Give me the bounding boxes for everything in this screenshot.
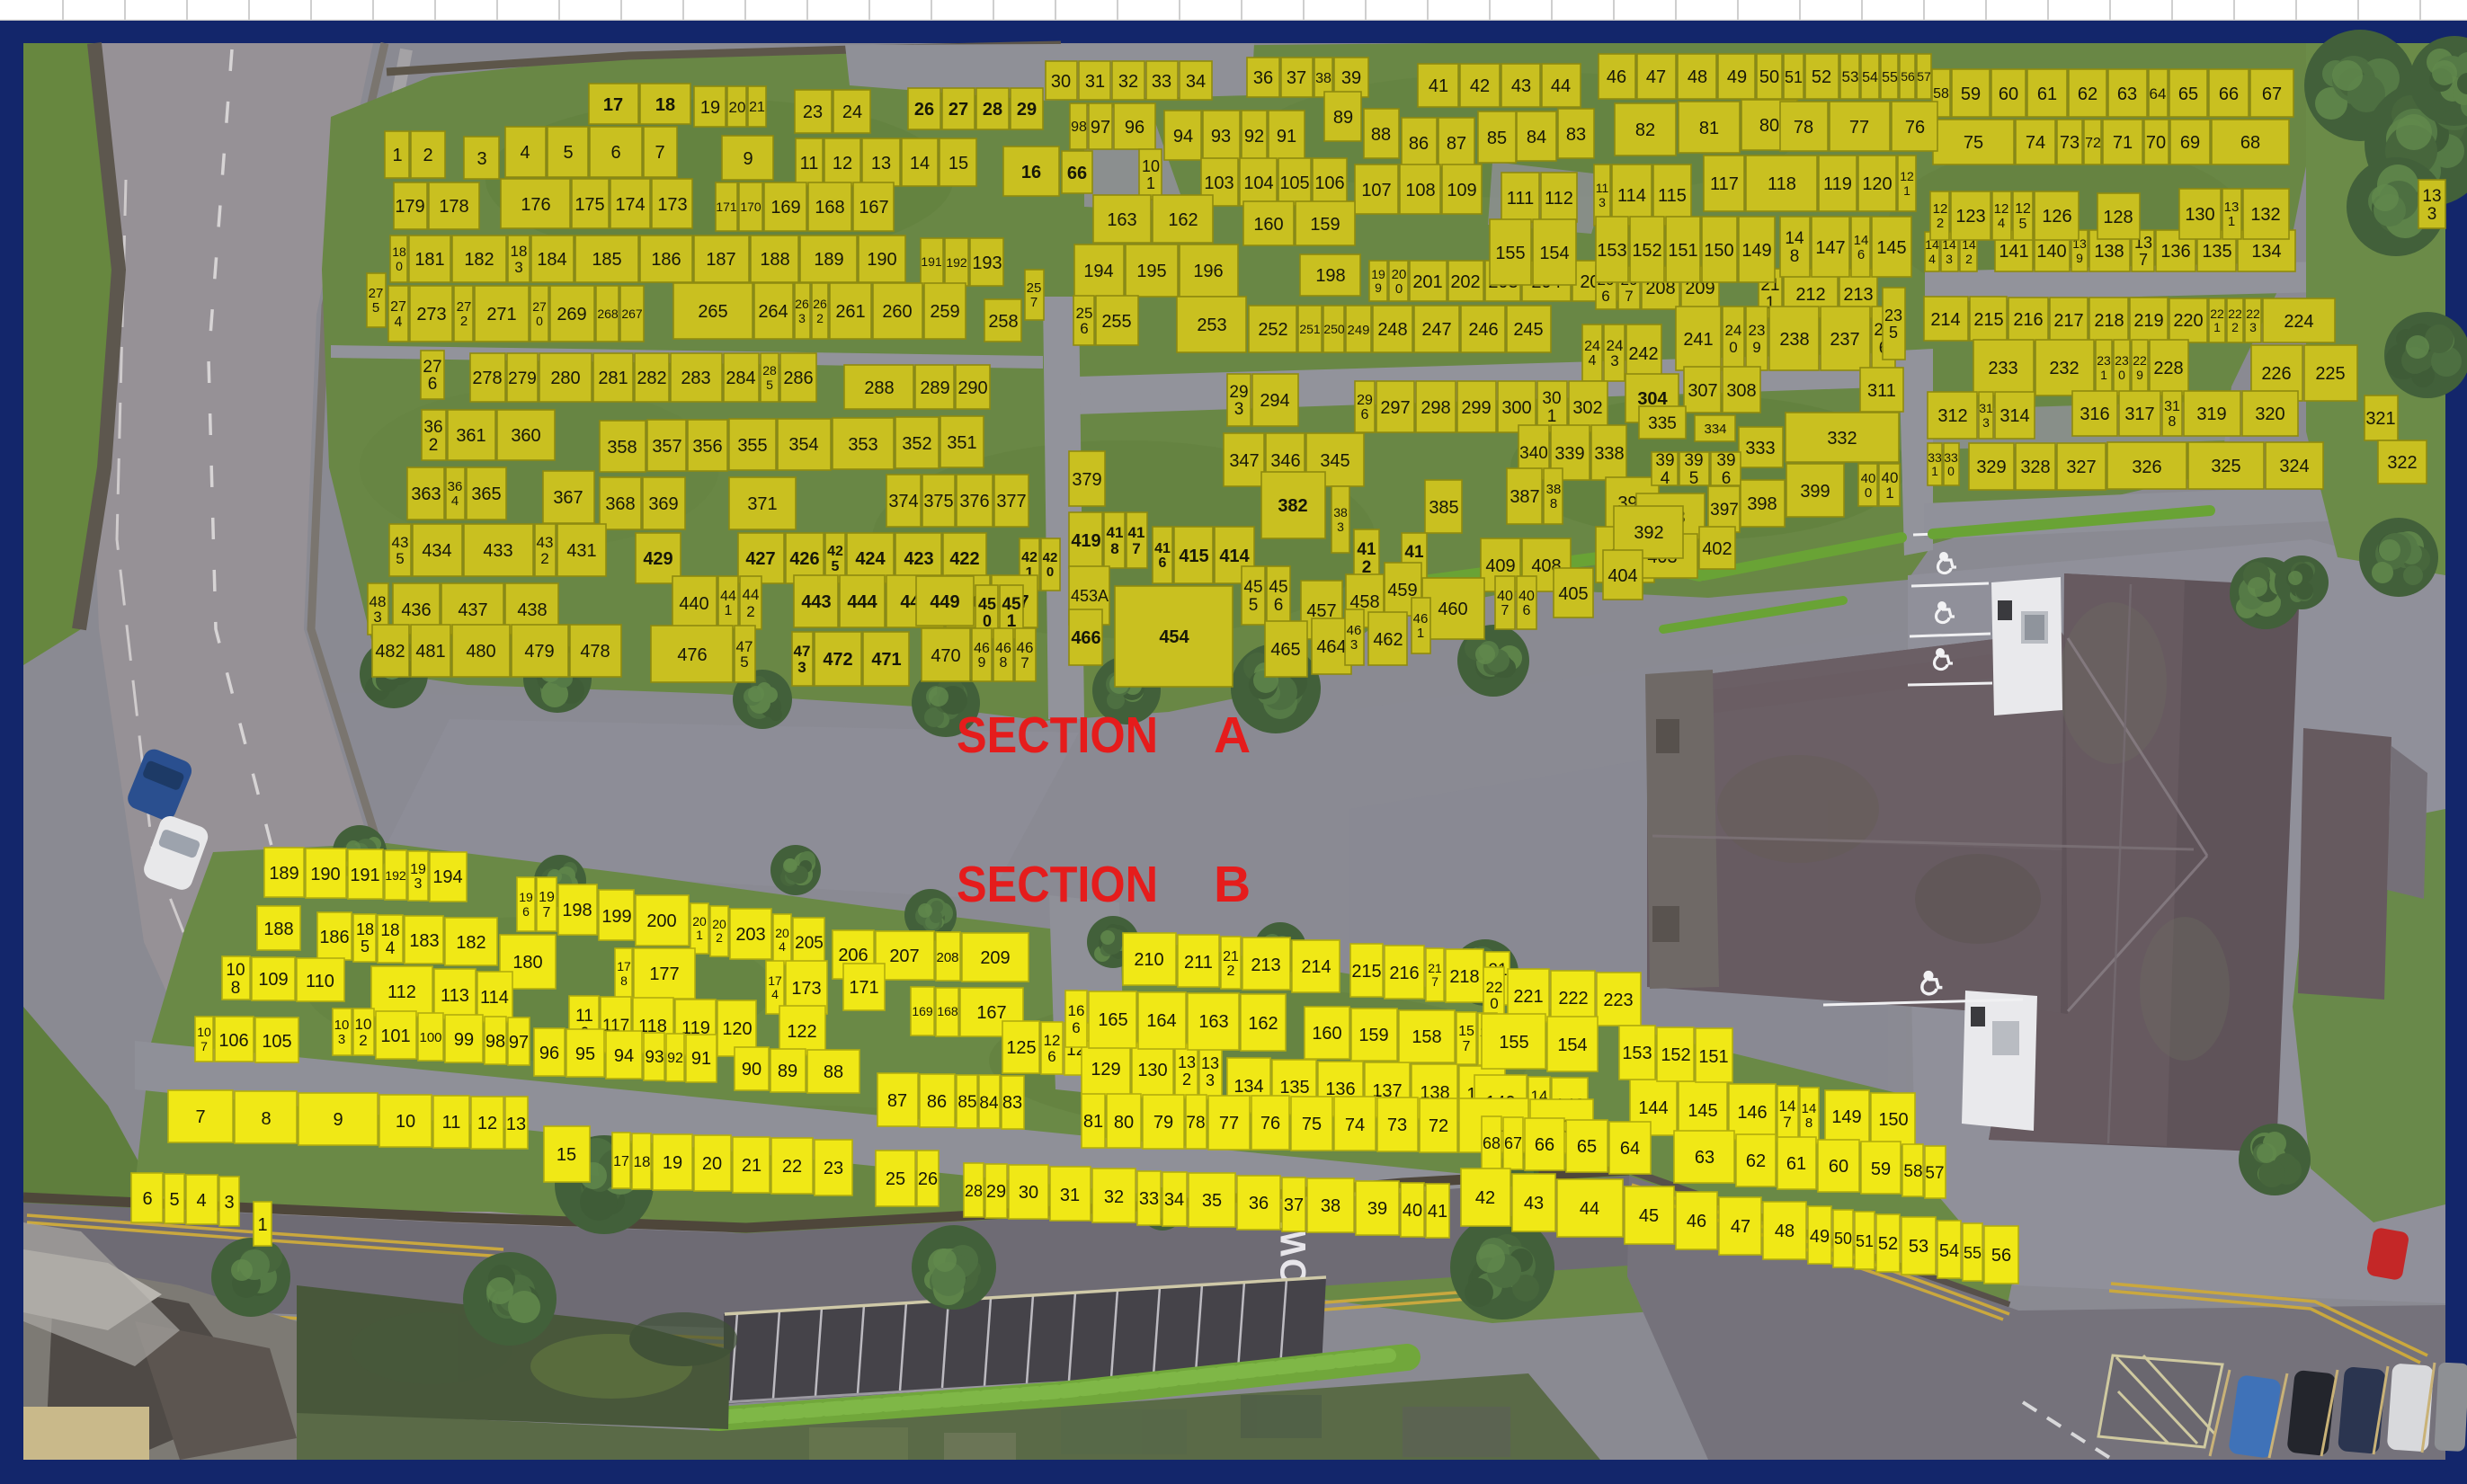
svg-text:103: 103 (1204, 173, 1233, 193)
svg-text:351: 351 (947, 433, 976, 453)
svg-text:41: 41 (1404, 543, 1424, 562)
svg-text:286: 286 (783, 369, 813, 388)
svg-text:168: 168 (815, 198, 844, 218)
svg-text:91: 91 (691, 1049, 711, 1069)
svg-text:67: 67 (2262, 84, 2282, 104)
svg-text:163: 163 (1198, 1012, 1228, 1032)
svg-text:19: 19 (1371, 267, 1385, 281)
svg-text:26: 26 (918, 1169, 938, 1189)
svg-text:189: 189 (814, 250, 843, 270)
svg-text:45: 45 (1243, 578, 1262, 597)
svg-text:279: 279 (508, 369, 537, 388)
svg-text:44: 44 (1580, 1199, 1599, 1219)
svg-text:424: 424 (855, 549, 886, 569)
svg-text:SECTION: SECTION (957, 856, 1158, 913)
svg-text:6: 6 (1523, 603, 1531, 618)
svg-text:427: 427 (745, 549, 775, 569)
svg-text:3: 3 (1599, 195, 1606, 209)
svg-text:52: 52 (1812, 67, 1831, 87)
svg-text:38: 38 (1546, 482, 1562, 497)
svg-text:367: 367 (553, 488, 583, 508)
svg-text:6: 6 (1159, 555, 1167, 571)
svg-text:471: 471 (871, 650, 901, 670)
svg-text:354: 354 (788, 435, 818, 455)
svg-text:171: 171 (849, 978, 878, 998)
svg-text:122: 122 (787, 1022, 816, 1042)
svg-text:159: 159 (1358, 1026, 1388, 1045)
svg-text:A: A (1214, 706, 1251, 764)
svg-text:12: 12 (1994, 201, 2009, 217)
svg-text:264: 264 (758, 302, 788, 322)
svg-text:181: 181 (414, 250, 444, 270)
svg-text:94: 94 (614, 1046, 634, 1066)
svg-text:3: 3 (476, 149, 486, 169)
svg-text:19: 19 (519, 890, 533, 904)
svg-text:75: 75 (1964, 133, 1983, 153)
svg-text:47: 47 (794, 643, 811, 660)
svg-text:17: 17 (768, 973, 782, 988)
svg-text:21: 21 (742, 1156, 761, 1176)
svg-text:47: 47 (1731, 1217, 1750, 1237)
svg-text:18: 18 (511, 243, 528, 260)
svg-text:325: 325 (2211, 457, 2240, 476)
svg-text:290: 290 (957, 378, 987, 398)
svg-text:49: 49 (1727, 67, 1747, 87)
svg-text:26: 26 (914, 100, 934, 120)
svg-text:5: 5 (563, 143, 573, 163)
svg-text:70: 70 (2146, 133, 2166, 153)
svg-text:152: 152 (1661, 1045, 1690, 1065)
svg-text:382: 382 (1278, 496, 1307, 516)
svg-text:5: 5 (372, 300, 379, 315)
svg-text:20: 20 (775, 926, 789, 940)
svg-text:73: 73 (1387, 1115, 1407, 1135)
svg-text:80: 80 (1759, 116, 1779, 136)
svg-text:10: 10 (396, 1112, 415, 1132)
svg-text:B: B (1214, 856, 1251, 913)
svg-text:48: 48 (1688, 67, 1707, 87)
svg-text:409: 409 (1485, 556, 1515, 576)
svg-text:23: 23 (1749, 322, 1766, 339)
svg-text:4: 4 (1661, 469, 1670, 488)
svg-text:154: 154 (1539, 244, 1569, 263)
svg-text:12: 12 (2015, 201, 2031, 217)
svg-text:43: 43 (537, 534, 554, 551)
svg-text:50: 50 (1759, 67, 1779, 87)
svg-text:125: 125 (1006, 1038, 1036, 1058)
svg-text:0: 0 (1729, 339, 1737, 356)
svg-text:4: 4 (779, 939, 786, 954)
svg-text:146: 146 (1737, 1103, 1767, 1123)
svg-text:358: 358 (607, 438, 637, 458)
svg-text:145: 145 (1688, 1101, 1717, 1121)
svg-text:62: 62 (2078, 84, 2097, 104)
svg-text:23: 23 (824, 1159, 843, 1178)
svg-text:154: 154 (1557, 1035, 1587, 1055)
svg-text:269: 269 (557, 305, 586, 324)
svg-text:5: 5 (361, 937, 370, 955)
svg-text:46: 46 (1607, 67, 1626, 87)
svg-text:5: 5 (832, 559, 840, 574)
svg-text:404: 404 (1608, 566, 1637, 586)
svg-text:135: 135 (2202, 242, 2231, 262)
svg-text:175: 175 (574, 195, 604, 215)
svg-text:399: 399 (1800, 482, 1830, 502)
svg-text:481: 481 (415, 642, 445, 662)
svg-text:1: 1 (1146, 174, 1155, 192)
svg-text:33: 33 (1139, 1189, 1159, 1209)
svg-text:41: 41 (1154, 541, 1171, 556)
svg-text:88: 88 (1371, 125, 1391, 145)
svg-text:101: 101 (380, 1026, 410, 1046)
svg-text:39: 39 (1367, 1199, 1387, 1219)
svg-text:329: 329 (1976, 458, 2006, 477)
svg-text:179: 179 (395, 197, 424, 217)
svg-text:176: 176 (521, 195, 550, 215)
svg-text:169: 169 (770, 198, 800, 218)
svg-text:12: 12 (477, 1114, 497, 1133)
svg-text:4: 4 (196, 1191, 206, 1211)
svg-text:7: 7 (1463, 1039, 1471, 1054)
svg-text:32: 32 (1104, 1187, 1124, 1207)
svg-text:37: 37 (1284, 1195, 1304, 1215)
svg-text:9: 9 (1375, 280, 1382, 295)
svg-text:51: 51 (1785, 68, 1803, 86)
svg-text:3: 3 (797, 659, 806, 676)
svg-text:338: 338 (1594, 444, 1624, 464)
svg-text:185: 185 (592, 250, 621, 270)
svg-text:25: 25 (1027, 280, 1042, 296)
svg-text:23: 23 (803, 102, 823, 122)
svg-text:16: 16 (1021, 163, 1041, 182)
svg-text:12: 12 (1933, 201, 1948, 217)
svg-text:6: 6 (610, 143, 620, 163)
svg-text:114: 114 (480, 988, 509, 1008)
svg-text:74: 74 (1345, 1115, 1365, 1135)
svg-text:61: 61 (1786, 1154, 1806, 1174)
svg-text:128: 128 (2103, 208, 2133, 227)
svg-text:470: 470 (931, 646, 960, 666)
svg-text:20: 20 (1392, 267, 1407, 282)
svg-text:SECTION: SECTION (957, 706, 1158, 764)
svg-text:8: 8 (1805, 1115, 1812, 1131)
svg-text:228: 228 (2153, 359, 2183, 378)
svg-text:87: 87 (887, 1091, 907, 1111)
svg-text:149: 149 (1831, 1107, 1861, 1127)
svg-text:369: 369 (648, 494, 678, 514)
svg-text:71: 71 (2113, 133, 2133, 153)
svg-text:33: 33 (1944, 450, 1958, 465)
svg-text:478: 478 (580, 642, 610, 662)
svg-text:27: 27 (949, 100, 968, 120)
svg-text:41: 41 (1357, 540, 1376, 559)
svg-text:335: 335 (1648, 414, 1677, 433)
svg-text:1: 1 (1885, 484, 1893, 502)
svg-text:31: 31 (1979, 401, 1993, 415)
svg-text:476: 476 (677, 645, 707, 665)
svg-text:440: 440 (679, 594, 708, 614)
svg-text:43: 43 (1524, 1194, 1544, 1213)
svg-text:250: 250 (1323, 322, 1345, 336)
svg-text:42: 42 (1475, 1188, 1495, 1208)
svg-text:0: 0 (1865, 485, 1872, 501)
svg-text:73: 73 (2060, 133, 2080, 153)
svg-text:134: 134 (2251, 242, 2281, 262)
svg-text:299: 299 (1461, 398, 1491, 418)
svg-text:105: 105 (1279, 173, 1309, 193)
svg-text:1: 1 (2100, 368, 2107, 382)
svg-text:97: 97 (1091, 118, 1110, 138)
svg-text:138: 138 (2094, 242, 2124, 262)
svg-text:110: 110 (306, 972, 334, 991)
svg-text:190: 190 (310, 865, 340, 884)
svg-text:7: 7 (195, 1107, 205, 1127)
svg-text:4: 4 (395, 315, 403, 330)
svg-text:4: 4 (1928, 252, 1936, 266)
svg-text:307: 307 (1688, 381, 1717, 401)
svg-text:438: 438 (517, 600, 547, 620)
svg-text:22: 22 (2210, 307, 2224, 321)
svg-text:19: 19 (410, 862, 426, 877)
svg-text:35: 35 (1202, 1191, 1222, 1211)
svg-text:249: 249 (1347, 323, 1369, 338)
svg-text:215: 215 (1973, 310, 2003, 330)
svg-text:77: 77 (1219, 1114, 1239, 1133)
svg-text:211: 211 (1184, 953, 1213, 973)
svg-text:31: 31 (1060, 1186, 1080, 1205)
svg-text:41: 41 (1128, 524, 1145, 541)
svg-text:3: 3 (2249, 320, 2257, 334)
svg-text:74: 74 (2026, 133, 2045, 153)
svg-text:129: 129 (1091, 1060, 1120, 1080)
svg-text:17: 17 (617, 959, 631, 973)
svg-text:168: 168 (937, 1004, 958, 1018)
svg-text:3: 3 (1337, 520, 1344, 534)
svg-text:2: 2 (460, 314, 468, 329)
svg-text:85: 85 (957, 1093, 976, 1112)
svg-text:190: 190 (867, 250, 896, 270)
svg-text:7: 7 (655, 143, 664, 163)
svg-text:15: 15 (949, 154, 968, 173)
svg-text:52: 52 (1878, 1234, 1898, 1254)
svg-text:4: 4 (386, 939, 396, 958)
svg-text:223: 223 (1603, 991, 1633, 1010)
svg-text:198: 198 (562, 901, 592, 920)
svg-text:232: 232 (2049, 359, 2079, 378)
svg-text:180: 180 (512, 953, 542, 973)
svg-text:109: 109 (258, 970, 288, 990)
svg-text:195: 195 (1136, 262, 1166, 281)
svg-text:8: 8 (261, 1109, 271, 1129)
svg-text:165: 165 (1098, 1010, 1127, 1030)
svg-text:218: 218 (1449, 967, 1479, 987)
svg-text:11: 11 (575, 1007, 593, 1026)
svg-text:24: 24 (842, 102, 862, 122)
svg-text:352: 352 (902, 434, 931, 454)
svg-text:434: 434 (422, 541, 451, 561)
svg-text:56: 56 (1901, 69, 1915, 84)
svg-text:6: 6 (1072, 1019, 1080, 1036)
svg-text:8: 8 (231, 979, 241, 998)
svg-text:46: 46 (974, 641, 990, 656)
svg-text:260: 260 (882, 302, 912, 322)
svg-text:41: 41 (1428, 1202, 1447, 1222)
svg-text:36: 36 (1249, 1194, 1269, 1213)
svg-text:217: 217 (2053, 311, 2083, 331)
svg-text:7: 7 (543, 905, 551, 920)
svg-text:162: 162 (1248, 1014, 1278, 1034)
svg-text:422: 422 (949, 549, 979, 569)
svg-text:429: 429 (643, 549, 672, 569)
svg-text:376: 376 (959, 492, 989, 511)
svg-text:385: 385 (1429, 498, 1458, 518)
svg-text:20: 20 (692, 914, 707, 929)
svg-text:38: 38 (1315, 71, 1331, 86)
svg-text:83: 83 (1002, 1093, 1022, 1113)
svg-text:1: 1 (257, 1215, 267, 1235)
svg-text:99: 99 (454, 1030, 474, 1050)
svg-text:22: 22 (1486, 979, 1503, 996)
svg-text:27: 27 (423, 358, 441, 377)
svg-text:189: 189 (269, 864, 298, 884)
svg-text:38: 38 (1321, 1196, 1340, 1216)
svg-text:193: 193 (972, 253, 1002, 273)
svg-text:237: 237 (1830, 330, 1859, 350)
svg-text:144: 144 (1638, 1098, 1668, 1118)
svg-text:402: 402 (1702, 539, 1732, 559)
svg-text:5: 5 (1889, 324, 1898, 342)
svg-text:41: 41 (1429, 76, 1448, 96)
svg-text:9: 9 (743, 149, 753, 169)
svg-text:13: 13 (2422, 187, 2441, 206)
svg-text:3: 3 (1206, 1071, 1215, 1089)
svg-text:96: 96 (539, 1044, 559, 1063)
svg-text:65: 65 (1577, 1137, 1597, 1157)
svg-text:46: 46 (1413, 611, 1429, 626)
svg-text:225: 225 (2315, 364, 2345, 384)
svg-text:167: 167 (859, 198, 888, 218)
svg-text:40: 40 (1861, 471, 1876, 486)
svg-text:145: 145 (1876, 238, 1906, 258)
svg-text:81: 81 (1699, 119, 1719, 138)
svg-text:109: 109 (1447, 181, 1476, 200)
svg-text:368: 368 (605, 494, 635, 514)
svg-text:374: 374 (888, 492, 918, 511)
svg-text:8: 8 (1790, 247, 1800, 266)
svg-text:322: 322 (2387, 453, 2417, 473)
svg-text:300: 300 (1501, 398, 1531, 418)
svg-text:324: 324 (2279, 457, 2309, 476)
svg-text:183: 183 (409, 931, 439, 951)
svg-text:357: 357 (652, 437, 681, 457)
svg-text:200: 200 (646, 911, 676, 931)
svg-text:42: 42 (1470, 76, 1490, 96)
svg-text:0: 0 (1046, 564, 1054, 580)
svg-text:63: 63 (1695, 1148, 1714, 1168)
svg-text:5: 5 (1249, 596, 1259, 615)
svg-text:191: 191 (921, 254, 942, 269)
svg-text:6: 6 (428, 375, 438, 394)
svg-text:258: 258 (988, 312, 1018, 332)
svg-text:282: 282 (637, 369, 666, 388)
svg-text:405: 405 (1558, 584, 1588, 604)
svg-text:5: 5 (740, 653, 748, 671)
svg-text:130: 130 (2185, 205, 2214, 225)
svg-text:199: 199 (601, 907, 631, 927)
svg-text:212: 212 (1795, 285, 1825, 305)
svg-text:22: 22 (2133, 353, 2147, 368)
svg-text:0: 0 (983, 612, 992, 630)
svg-text:216: 216 (2013, 310, 2043, 330)
svg-text:21: 21 (1428, 961, 1442, 975)
svg-text:7: 7 (1783, 1114, 1791, 1131)
svg-text:155: 155 (1499, 1033, 1528, 1053)
svg-text:50: 50 (1834, 1230, 1852, 1248)
svg-text:233: 233 (1988, 359, 2017, 378)
svg-text:311: 311 (1867, 381, 1896, 401)
svg-text:40: 40 (1518, 589, 1535, 604)
svg-text:213: 213 (1843, 285, 1873, 305)
svg-text:30: 30 (1542, 389, 1561, 408)
svg-text:2: 2 (1182, 1071, 1191, 1089)
svg-text:392: 392 (1634, 523, 1663, 543)
svg-text:205: 205 (795, 934, 824, 953)
svg-text:55: 55 (1964, 1244, 1982, 1262)
svg-text:12: 12 (833, 154, 852, 173)
svg-text:76: 76 (1905, 118, 1925, 138)
svg-text:472: 472 (823, 650, 852, 670)
svg-text:327: 327 (2066, 458, 2096, 477)
svg-text:22: 22 (2228, 307, 2242, 321)
svg-text:17: 17 (613, 1154, 629, 1169)
svg-text:84: 84 (1527, 128, 1546, 147)
svg-text:98: 98 (1071, 120, 1087, 135)
svg-text:7: 7 (200, 1039, 208, 1053)
svg-text:20: 20 (712, 917, 726, 931)
svg-text:356: 356 (692, 437, 722, 457)
svg-text:7: 7 (1030, 295, 1038, 310)
svg-text:43: 43 (392, 534, 409, 551)
svg-text:44: 44 (743, 586, 760, 603)
svg-text:9: 9 (1752, 339, 1760, 356)
svg-text:387: 387 (1510, 487, 1539, 507)
svg-text:0: 0 (536, 314, 543, 328)
svg-text:83: 83 (1566, 125, 1586, 145)
svg-text:21: 21 (1223, 949, 1239, 964)
svg-text:98: 98 (485, 1032, 505, 1052)
svg-text:42: 42 (1021, 550, 1038, 565)
svg-text:182: 182 (456, 933, 485, 953)
svg-text:188: 188 (263, 920, 293, 939)
svg-text:14: 14 (1802, 1101, 1817, 1116)
svg-text:13: 13 (2224, 200, 2240, 215)
svg-text:29: 29 (986, 1182, 1006, 1202)
svg-text:10: 10 (334, 1017, 350, 1033)
svg-text:7: 7 (1625, 288, 1633, 305)
svg-text:78: 78 (1186, 1114, 1205, 1133)
svg-text:58: 58 (1903, 1162, 1922, 1181)
svg-text:3: 3 (798, 311, 806, 325)
svg-text:3: 3 (1946, 252, 1953, 266)
svg-text:112: 112 (1545, 189, 1573, 209)
svg-text:151: 151 (1668, 241, 1697, 261)
svg-text:379: 379 (1072, 470, 1101, 490)
svg-text:96: 96 (1125, 118, 1144, 138)
svg-text:45: 45 (1269, 578, 1287, 597)
svg-text:2: 2 (359, 1032, 367, 1049)
svg-text:153: 153 (1597, 241, 1626, 261)
svg-text:267: 267 (621, 307, 643, 321)
